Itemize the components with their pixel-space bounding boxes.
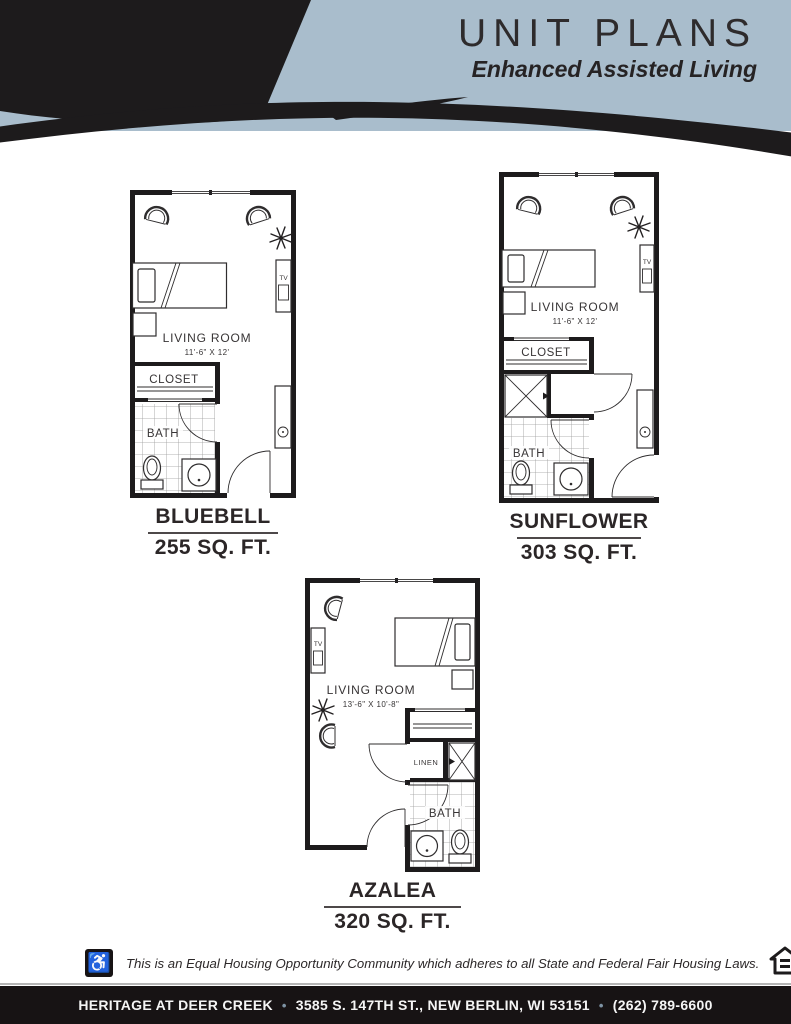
armchair (244, 204, 270, 225)
pillow (455, 624, 470, 660)
tv-label: TV (643, 259, 652, 266)
vanity-counter (637, 390, 653, 448)
plan-caption: SUNFLOWER 303 SQ. FT. (499, 510, 659, 565)
storage-door (594, 374, 632, 412)
living-room-label: LIVING ROOM (163, 331, 252, 345)
living-room-dimensions: 11'-6" X 12' (553, 317, 598, 326)
closet-shelves (137, 387, 213, 402)
plan-area: 303 SQ. FT. (499, 541, 659, 565)
plant-icon (312, 699, 334, 721)
living-room-dimensions: 11'-6" X 12' (185, 348, 230, 357)
page-title: UNIT PLANS (458, 14, 757, 55)
bluebell-plan-drawing: TV LIVING ROOM 11'-6" X 12' CLOSET BATH (130, 190, 296, 498)
plant-icon (270, 227, 292, 249)
sink (411, 831, 443, 861)
bed (133, 263, 227, 336)
closet-shelves (413, 709, 472, 728)
armchair (145, 205, 171, 225)
pillow (138, 269, 155, 302)
floorplan-sunflower: TV LIVING ROOM 11'-6" X 12' CLOSET (499, 172, 659, 565)
plan-name-underline (324, 906, 461, 908)
bath-label: BATH (513, 448, 545, 460)
armchair (608, 194, 634, 215)
plan-caption: BLUEBELL 255 SQ. FT. (130, 505, 296, 560)
living-room-label: LIVING ROOM (327, 683, 416, 697)
nightstand (503, 292, 525, 314)
entry-door (612, 455, 654, 497)
vanity-counter (275, 386, 291, 448)
wheelchair-icon: ♿ (85, 949, 113, 977)
plan-area: 255 SQ. FT. (130, 536, 296, 560)
plan-area: 320 SQ. FT. (305, 910, 480, 934)
plan-name: BLUEBELL (130, 505, 296, 529)
sink (554, 463, 588, 495)
tv-unit: TV (276, 260, 291, 312)
plant-icon (628, 216, 650, 238)
header-banner: UNIT PLANS Enhanced Assisted Living (0, 0, 791, 160)
header-text-block: UNIT PLANS Enhanced Assisted Living (458, 14, 757, 83)
plan-caption: AZALEA 320 SQ. FT. (305, 879, 480, 934)
equal-housing-icon (769, 946, 791, 981)
footer-phone: (262) 789-6600 (613, 997, 713, 1013)
footer-separator: • (590, 998, 613, 1013)
azalea-plan-drawing: TV LIVING ROOM 13'-6" X 10'-8" (305, 578, 480, 872)
armchair (517, 195, 543, 215)
page: UNIT PLANS Enhanced Assisted Living (0, 0, 791, 1024)
shower (505, 375, 549, 417)
fair-housing-text: This is an Equal Housing Opportunity Com… (113, 956, 769, 971)
footer-separator: • (273, 998, 296, 1013)
plan-name: SUNFLOWER (499, 510, 659, 534)
footer-bar: HERITAGE AT DEER CREEK • 3585 S. 147TH S… (0, 986, 791, 1024)
closet-label: CLOSET (149, 374, 199, 386)
living-room-dimensions: 13'-6" X 10'-8" (343, 700, 400, 709)
tv-unit: TV (640, 245, 654, 292)
sunflower-plan-drawing: TV LIVING ROOM 11'-6" X 12' CLOSET (499, 172, 659, 503)
living-room-label: LIVING ROOM (531, 300, 620, 314)
armchair (323, 594, 343, 620)
footer-address: 3585 S. 147TH ST., NEW BERLIN, WI 53151 (296, 997, 590, 1013)
tv-label: TV (279, 275, 288, 282)
bath-label: BATH (429, 808, 461, 820)
nightstand (452, 670, 473, 689)
entry-door (367, 809, 405, 847)
footer-company: HERITAGE AT DEER CREEK (78, 997, 273, 1013)
shower (449, 743, 475, 780)
entry-door (228, 451, 270, 493)
closet-label: CLOSET (521, 347, 571, 359)
plan-name-underline (517, 537, 642, 539)
nightstand (133, 313, 156, 336)
plan-name: AZALEA (305, 879, 480, 903)
bed (395, 618, 475, 689)
armchair (320, 725, 335, 748)
linen-label: LINEN (414, 758, 439, 767)
floorplan-azalea: TV LIVING ROOM 13'-6" X 10'-8" (305, 578, 480, 934)
sink (182, 459, 216, 491)
page-subtitle: Enhanced Assisted Living (458, 56, 757, 83)
linen-door (369, 744, 407, 782)
bath-label: BATH (147, 428, 179, 440)
plan-name-underline (148, 532, 277, 534)
footer-rule (0, 983, 791, 985)
fair-housing-row: ♿ This is an Equal Housing Opportunity C… (85, 946, 714, 980)
tv-label: TV (314, 641, 323, 648)
tv-unit: TV (311, 628, 325, 673)
floorplan-bluebell: TV LIVING ROOM 11'-6" X 12' CLOSET BATH (130, 190, 296, 560)
pillow (508, 255, 524, 282)
